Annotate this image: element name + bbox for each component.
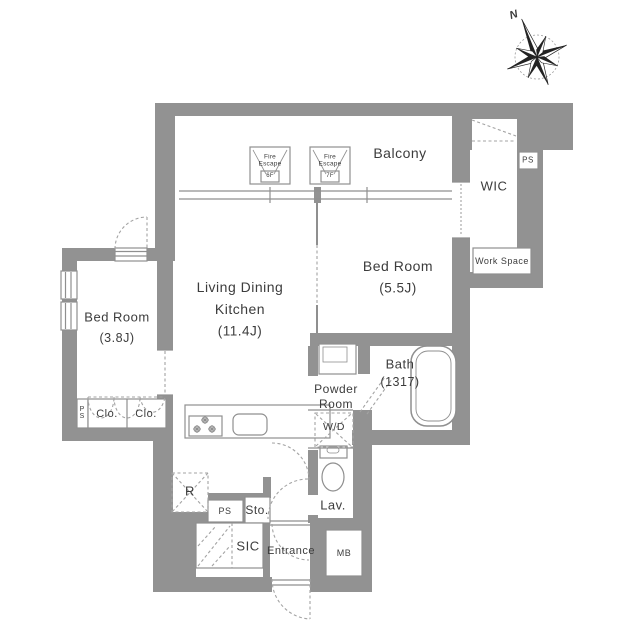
toilet-bowl-icon <box>322 463 344 491</box>
fire-escape-2-line1: Fire <box>324 154 336 161</box>
closet-left-label: Clo. <box>96 408 118 420</box>
pipe-space-left-label: PS <box>79 406 86 420</box>
wic-label: WIC <box>481 179 508 194</box>
bath-label: Bath <box>386 357 415 372</box>
storage-label: Sto. <box>245 503 268 517</box>
ldk-size: (11.4J) <box>218 324 263 339</box>
door-arc-hall-kitchen <box>272 443 309 480</box>
window-left-2 <box>61 302 77 330</box>
ldk-label-line2: Kitchen <box>215 301 265 317</box>
pipe-space-bottom-label: PS <box>218 506 231 516</box>
bedroom-second-label: Bed Room <box>84 310 149 325</box>
closet-right-label: Clo. <box>135 408 157 420</box>
washer-dryer-label: W/D <box>323 421 345 433</box>
fire-escape-1-floor: 6F <box>266 173 273 179</box>
pipe-space-top-label: PS <box>522 156 534 165</box>
powder-room-line1: Powder <box>314 382 358 396</box>
refrigerator-label: R <box>185 484 195 499</box>
mail-box-label: MB <box>337 548 352 558</box>
bedroom-main-label: Bed Room <box>363 258 433 274</box>
door-arc-lavatory <box>268 479 308 519</box>
kitchen-sink <box>233 414 267 435</box>
compass-rose-icon <box>492 7 578 97</box>
door-opening-top-left <box>115 248 147 261</box>
entrance-label: Entrance <box>267 545 315 557</box>
shoe-closet-label: SIC <box>236 539 259 554</box>
bath-size: (1317) <box>380 375 419 389</box>
fire-escape-1-line1: Fire <box>264 154 276 161</box>
powder-vanity-sink <box>323 347 347 362</box>
bedroom-second-size: (3.8J) <box>100 331 135 345</box>
floor-plan: Balcony Fire Escape 6F Fire Escape 7F WI… <box>0 0 640 639</box>
fire-escape-2-floor: 7F <box>326 173 333 179</box>
window-left-1 <box>61 271 77 299</box>
bedroom-main-size: (5.5J) <box>379 281 417 296</box>
bathtub-inner <box>416 351 451 421</box>
lavatory-label: Lav. <box>320 498 346 513</box>
ldk-label-line1: Living Dining <box>197 279 284 295</box>
fire-escape-1-line2: Escape <box>259 161 282 168</box>
powder-room-line2: Room <box>319 397 353 411</box>
fire-escape-2-line2: Escape <box>319 161 342 168</box>
work-space-label: Work Space <box>475 256 529 266</box>
door-arc-bedroom2 <box>115 217 147 249</box>
balcony-label: Balcony <box>373 145 426 161</box>
